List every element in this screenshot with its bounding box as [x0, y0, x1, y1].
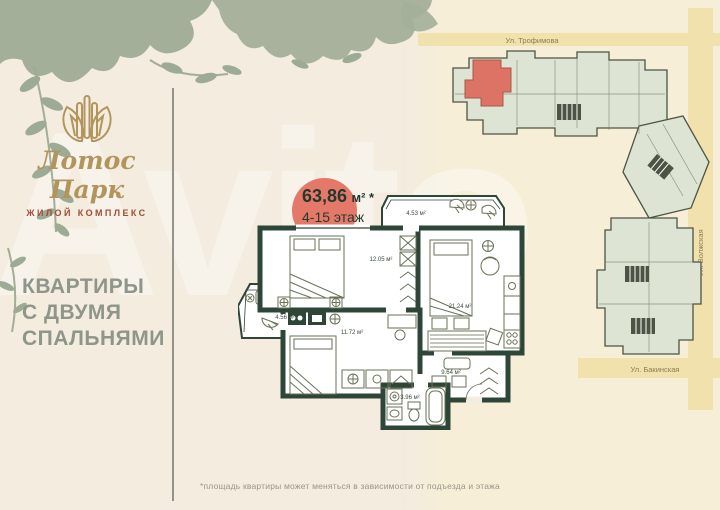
label-balcony-top: 4.53 м²: [406, 211, 425, 217]
footnote: *площадь квартиры может меняться в завис…: [200, 481, 500, 491]
logo-title: Лотос Парк: [0, 146, 174, 204]
balcony-top: [382, 196, 504, 228]
label-living: 21.24 м²: [449, 304, 472, 310]
flyer-canvas: Avito: [0, 0, 720, 510]
label-bedroom-1: 12.05 м²: [370, 257, 393, 263]
label-balcony-left: 4.56 м²: [275, 315, 294, 321]
logo-subtitle: жилой комплекс: [0, 208, 174, 218]
label-hallway: 9.64 м²: [441, 370, 460, 376]
label-bathroom: 3.96 м²: [400, 395, 419, 401]
heading-line-1: КВАРТИРЫ: [22, 274, 172, 300]
apartment-floors: 4-15 этаж: [302, 209, 374, 225]
street-bakinskaya-label: Ул. Бакинская: [631, 365, 680, 374]
page-title: КВАРТИРЫ С ДВУМЯ СПАЛЬНЯМИ: [22, 274, 172, 352]
apartment-area-unit: м² *: [352, 190, 375, 205]
label-bedroom-2: 11.72 м²: [341, 330, 363, 336]
heading-line-2: С ДВУМЯ: [22, 300, 172, 326]
apartment-floorplan: 4.53 м² 12.05 м² 21.24 м² 4.56 м² 11.72 …: [238, 178, 528, 430]
street-volzhskaya-band: [688, 8, 713, 410]
street-trofimova-band: [418, 33, 720, 46]
apartment-area-value: 63,86: [302, 186, 347, 206]
heading-line-3: СПАЛЬНЯМИ: [22, 326, 172, 352]
area-badge-text: 63,86 м² * 4-15 этаж: [302, 186, 374, 225]
logo-block: Лотос Парк жилой комплекс: [0, 86, 174, 218]
lotus-logo-icon: [50, 86, 124, 144]
street-trofimova-label: Ул. Трофимова: [505, 36, 559, 45]
